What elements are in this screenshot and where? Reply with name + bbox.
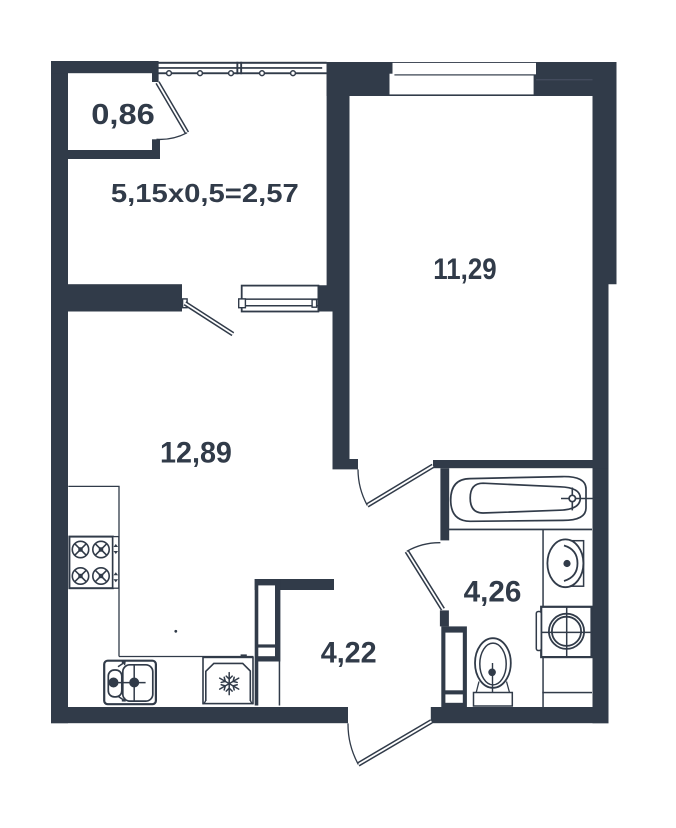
svg-text:4,26: 4,26 — [464, 576, 522, 609]
svg-text:11,29: 11,29 — [433, 253, 496, 286]
svg-text:0,86: 0,86 — [91, 99, 155, 131]
svg-text:5,15x0,5=2,57: 5,15x0,5=2,57 — [111, 178, 299, 208]
svg-text:4,22: 4,22 — [321, 637, 377, 670]
svg-text:12,89: 12,89 — [160, 437, 232, 470]
